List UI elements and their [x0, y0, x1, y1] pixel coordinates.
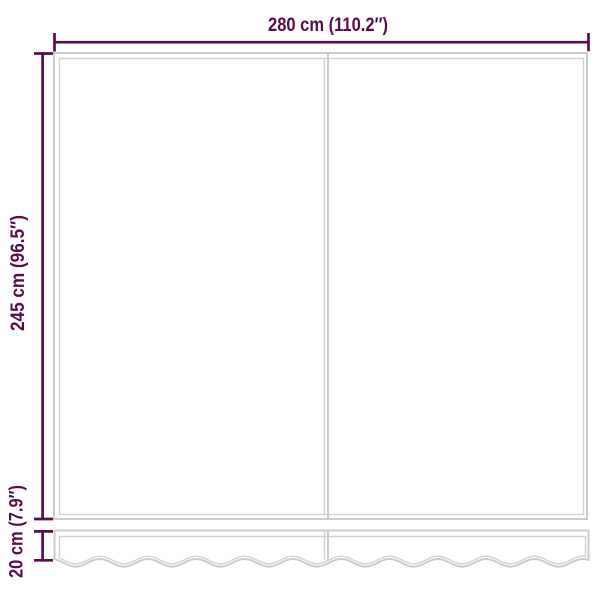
- svg-text:20 cm (7.9″): 20 cm (7.9″): [6, 485, 28, 578]
- svg-text:245 cm (96.5″): 245 cm (96.5″): [7, 215, 29, 331]
- svg-text:280 cm (110.2″): 280 cm (110.2″): [268, 14, 388, 36]
